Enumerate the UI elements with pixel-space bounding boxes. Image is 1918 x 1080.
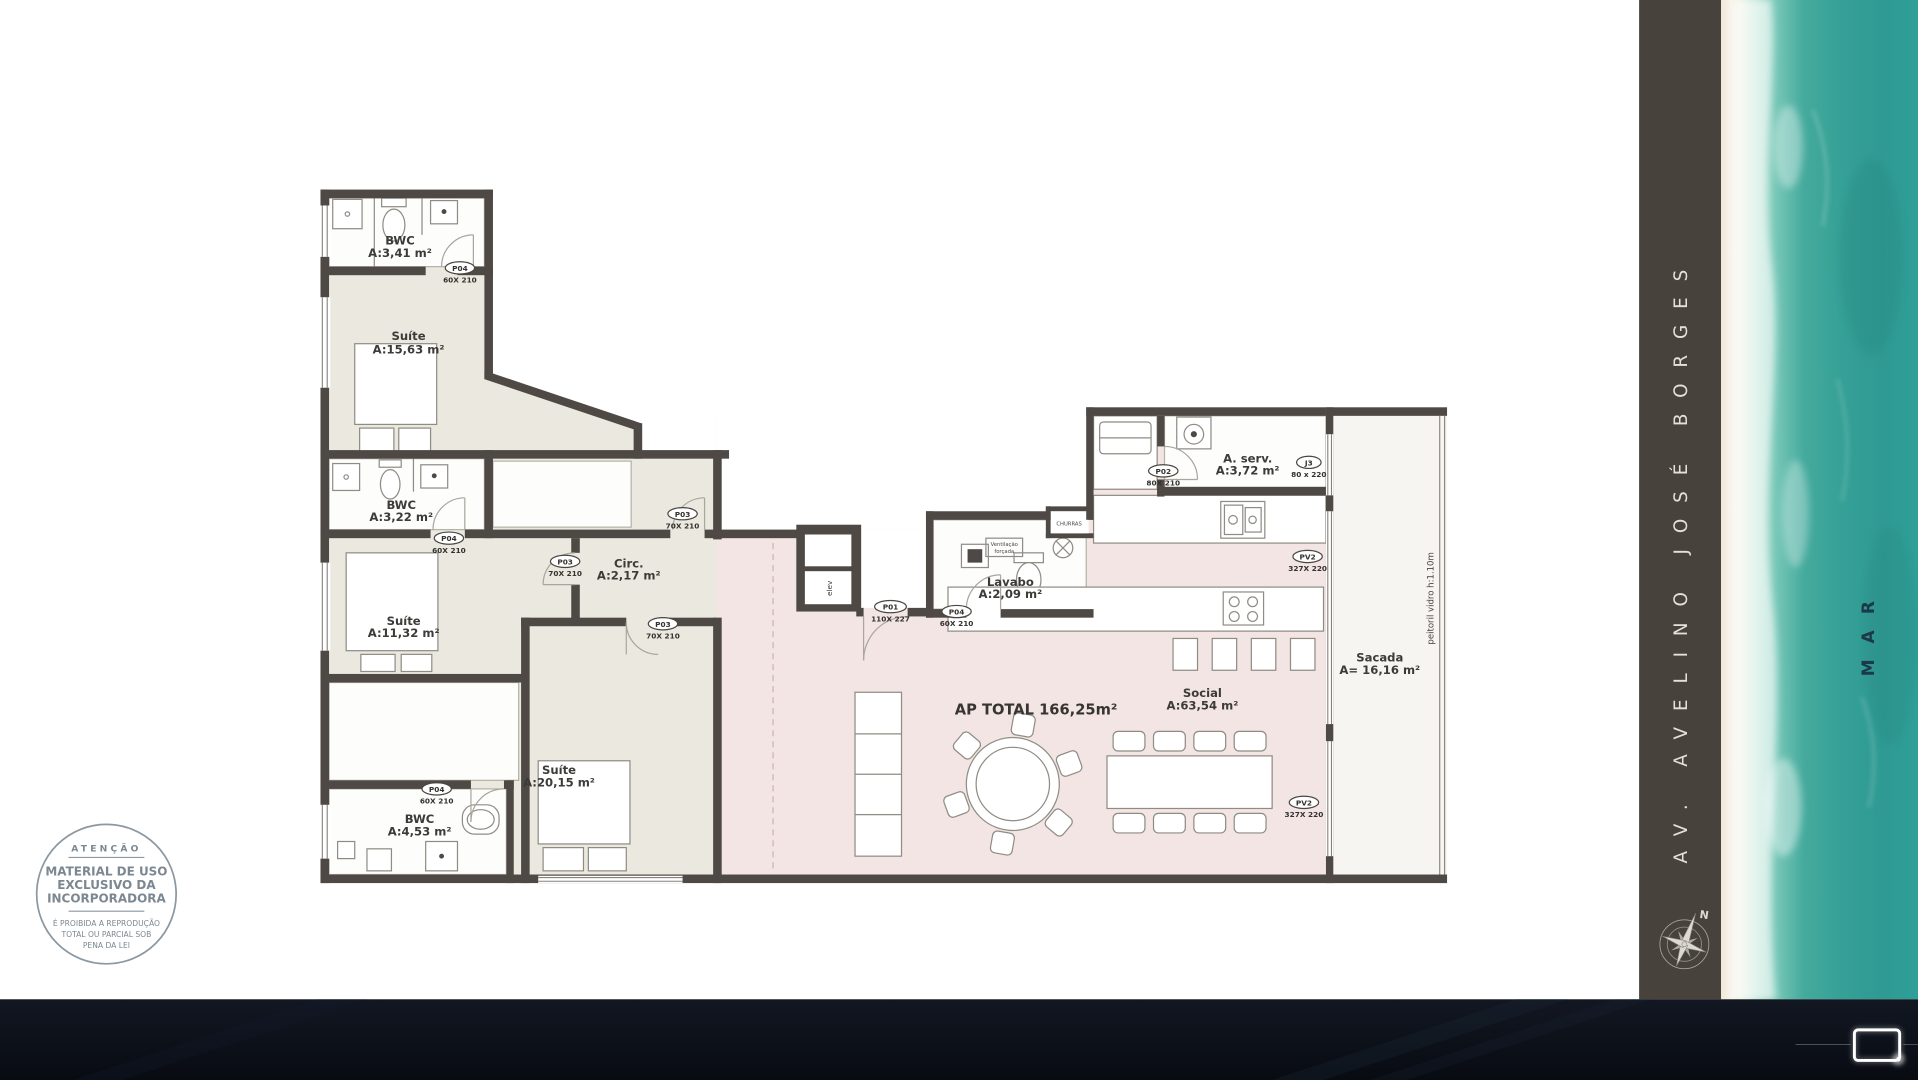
window-j3 <box>1326 434 1333 495</box>
page: BWC A:3,41 m² Suíte A:15,63 m² BWC A:3,2… <box>0 0 1918 1080</box>
room-label-lavabo-area: A:2,09 m² <box>979 587 1043 601</box>
window-bwc3 <box>319 805 330 859</box>
attention-stamp: ATENÇÃO MATERIAL DE USO EXCLUSIVO DA INC… <box>37 824 176 963</box>
window-suite3 <box>538 876 682 883</box>
churras-label: CHURRAS <box>1056 521 1082 527</box>
svg-text:60X 210: 60X 210 <box>940 619 974 628</box>
ap-total-label: AP TOTAL 166,25m² <box>955 701 1118 718</box>
svg-text:P03: P03 <box>675 510 691 519</box>
room-label-aserv-area: A:3,72 m² <box>1216 464 1280 478</box>
stamp-note2: TOTAL OU PARCIAL SOB <box>60 930 151 939</box>
room-label-bwc2-area: A:3,22 m² <box>369 510 433 524</box>
room-dressing <box>329 682 519 780</box>
peitoril-label: peitoril vidro h:1.10m <box>1427 552 1437 644</box>
svg-text:P02: P02 <box>1155 467 1171 476</box>
svg-text:P03: P03 <box>655 620 671 629</box>
window-suite2 <box>319 563 330 651</box>
svg-text:60X 210: 60X 210 <box>443 276 477 285</box>
svg-text:110X 227: 110X 227 <box>871 614 910 623</box>
compass-north-label: N <box>1699 908 1710 922</box>
kitchen-counter <box>1094 495 1326 543</box>
window-bwc1 <box>319 205 330 256</box>
floor-cover-top <box>717 361 1086 530</box>
window-pv2-social <box>1326 741 1333 856</box>
svg-text:P01: P01 <box>883 603 899 612</box>
right-panel: AV. AVELINO JOSÉ BORGES N <box>1639 0 1721 999</box>
elevator-hall-label: H <box>0 0 4 3</box>
svg-text:J3: J3 <box>1304 458 1313 467</box>
svg-text:P03: P03 <box>557 557 573 566</box>
room-label-sacada-area: A= 16,16 m² <box>1339 663 1420 677</box>
room-closet <box>493 461 631 527</box>
svg-text:PV2: PV2 <box>1296 798 1312 807</box>
svg-text:60X 210: 60X 210 <box>420 797 454 806</box>
svg-text:327X 220: 327X 220 <box>1285 810 1324 819</box>
svg-text:P04: P04 <box>429 785 445 794</box>
stamp-line3: INCORPORADORA <box>47 892 166 906</box>
elevator-cab-label: elev <box>825 580 834 596</box>
svg-text:60X 210: 60X 210 <box>432 546 466 555</box>
svg-text:70X 210: 70X 210 <box>548 569 582 578</box>
street-name-vertical: AV. AVELINO JOSÉ BORGES <box>1670 254 1692 864</box>
room-label-circ-area: A:2,17 m² <box>597 569 661 583</box>
room-label-suite2-area: A:11,32 m² <box>368 626 440 640</box>
stamp-line1: MATERIAL DE USO <box>45 865 167 879</box>
room-label-social-area: A:63,54 m² <box>1167 698 1239 712</box>
room-label-bwc1-area: A:3,41 m² <box>368 246 432 260</box>
svg-text:PV2: PV2 <box>1300 553 1316 562</box>
stamp-title: ATENÇÃO <box>71 843 141 854</box>
room-label-suite3-area: A:20,15 m² <box>523 775 595 789</box>
ventilation-label-1: Ventilação <box>991 542 1018 548</box>
ocean-photo: MAR <box>1721 0 1918 999</box>
buffet-icon <box>855 692 901 856</box>
svg-text:P04: P04 <box>949 608 965 617</box>
room-label-suite1-name: Suíte <box>392 329 426 343</box>
window-pv2-kitchen <box>1326 511 1333 724</box>
floor-balcony <box>1333 416 1447 875</box>
window-suite1 <box>319 297 330 388</box>
floor-cover-hall <box>861 530 926 608</box>
room-label-suite1-area: A:15,63 m² <box>373 342 445 356</box>
svg-text:P04: P04 <box>441 534 457 543</box>
svg-text:70X 210: 70X 210 <box>646 631 680 640</box>
svg-text:80X 210: 80X 210 <box>1146 479 1180 488</box>
elevator-shaft <box>796 525 861 612</box>
svg-text:P04: P04 <box>452 264 468 273</box>
stamp-note1: É PROIBIDA A REPRODUÇÃO <box>53 919 160 928</box>
svg-text:70X 210: 70X 210 <box>666 521 700 530</box>
svg-text:327X 220: 327X 220 <box>1288 564 1327 573</box>
stamp-line2: EXCLUSIVO DA <box>57 878 156 892</box>
svg-text:80 x 220: 80 x 220 <box>1291 470 1326 479</box>
bottom-bar <box>0 999 1918 1080</box>
washing-machine-icon <box>1177 417 1211 449</box>
ventilation-label-2: forçada <box>994 549 1014 555</box>
room-label-bwc3-area: A:4,53 m² <box>388 824 452 838</box>
stamp-note3: PENA DA LEI <box>83 941 130 950</box>
sea-label: MAR <box>1859 585 1879 676</box>
